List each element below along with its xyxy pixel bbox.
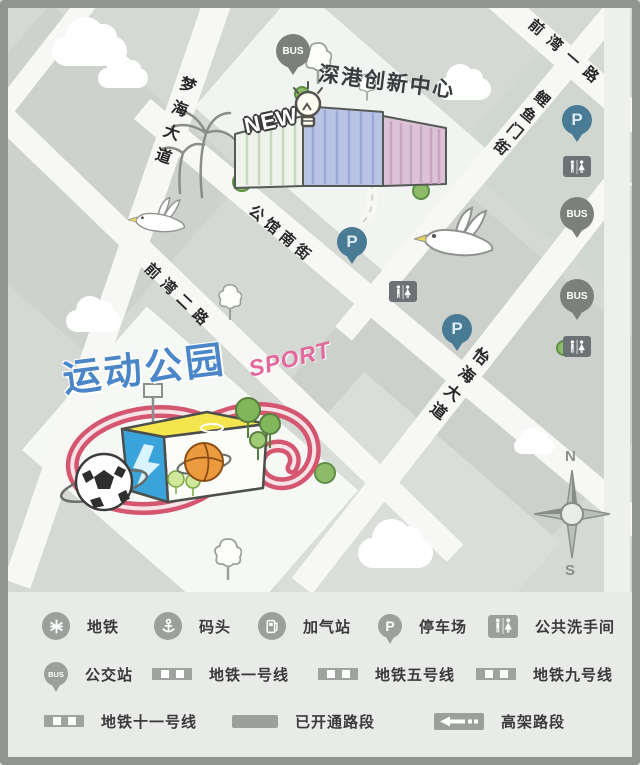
legend-label: 公交站 xyxy=(85,664,133,685)
legend-item-restroom: 公共洗手间 xyxy=(488,610,615,642)
sports-park-art xyxy=(52,382,337,540)
restroom-icon xyxy=(563,156,591,177)
cloud xyxy=(358,538,433,568)
legend-label: 停车场 xyxy=(419,616,467,637)
cloud xyxy=(98,68,148,88)
legend-item-dock: 码头 xyxy=(154,610,231,642)
metro-icon xyxy=(42,612,70,640)
bird-icon xyxy=(128,196,200,241)
legend-label: 高架路段 xyxy=(501,711,565,732)
parking-icon: P xyxy=(378,614,402,638)
parking-pin: P xyxy=(562,105,592,135)
cloud xyxy=(514,438,554,454)
cloud xyxy=(66,310,121,332)
compass-rose-icon xyxy=(534,470,610,558)
elevated-road-icon xyxy=(434,713,484,730)
bus-pin-label: BUS xyxy=(282,46,303,57)
legend-item-gas: 加气站 xyxy=(258,610,351,642)
bus-stop-pin: BUS xyxy=(560,197,594,231)
parking-pin-label: P xyxy=(385,618,394,634)
bus-pin-label: BUS xyxy=(566,291,587,302)
legend-item-bus: BUS 公交站 xyxy=(44,658,133,690)
anchor-icon xyxy=(154,612,182,640)
innovation-center-building xyxy=(233,90,448,200)
compass-south-label: S xyxy=(565,562,575,579)
legend-item-line9: 地铁九号线 xyxy=(476,658,613,690)
parking-pin-label: P xyxy=(451,319,462,339)
map-area: NEW 深港创新中心 xyxy=(0,0,640,592)
legend-label: 已开通路段 xyxy=(295,711,375,732)
legend-label: 公共洗手间 xyxy=(535,616,615,637)
restroom-icon xyxy=(563,336,591,357)
legend-label: 地铁 xyxy=(87,616,119,637)
bus-pin-label: BUS xyxy=(48,670,64,679)
restroom-icon xyxy=(488,615,518,638)
legend-item-line5: 地铁五号线 xyxy=(318,658,455,690)
tree-icon xyxy=(218,282,242,322)
map-poster: NEW 深港创新中心 xyxy=(0,0,640,765)
parking-pin-label: P xyxy=(346,232,357,252)
legend: 地铁 码头 加气站 P 停车场 公共洗手间 BUS 公交站 地铁一号线 地铁五号 xyxy=(0,592,640,765)
parking-pin: P xyxy=(442,314,472,344)
parking-pin: P xyxy=(337,227,367,257)
legend-label: 地铁一号线 xyxy=(209,664,289,685)
legend-item-line11: 地铁十一号线 xyxy=(44,705,197,737)
bus-stop-icon: BUS xyxy=(44,662,68,686)
metro-line-swatch-icon xyxy=(44,715,84,727)
legend-label: 地铁十一号线 xyxy=(101,711,197,732)
legend-label: 码头 xyxy=(199,616,231,637)
compass-north-label: N xyxy=(565,448,576,465)
metro-line-swatch-icon xyxy=(476,668,516,680)
legend-item-parking: P 停车场 xyxy=(378,610,467,642)
legend-label: 地铁五号线 xyxy=(375,664,455,685)
bus-stop-pin: BUS xyxy=(560,279,594,313)
metro-line-swatch-icon xyxy=(318,668,358,680)
opened-road-swatch-icon xyxy=(232,715,278,728)
legend-item-line1: 地铁一号线 xyxy=(152,658,289,690)
gas-station-icon xyxy=(258,612,286,640)
bird-icon xyxy=(414,206,514,268)
tree-icon xyxy=(214,536,242,582)
legend-item-elevated: 高架路段 xyxy=(434,705,565,737)
parking-pin-label: P xyxy=(571,110,582,130)
restroom-icon xyxy=(389,281,417,302)
legend-label: 地铁九号线 xyxy=(533,664,613,685)
bus-pin-label: BUS xyxy=(566,209,587,220)
legend-item-metro: 地铁 xyxy=(42,610,119,642)
legend-label: 加气站 xyxy=(303,616,351,637)
bus-stop-pin: BUS xyxy=(276,34,310,68)
legend-item-opened: 已开通路段 xyxy=(232,705,375,737)
metro-line-swatch-icon xyxy=(152,668,192,680)
